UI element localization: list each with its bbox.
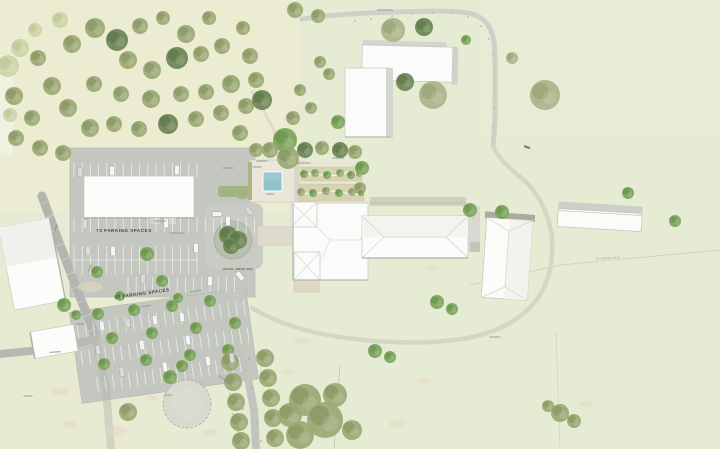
upper-parking-label: 73 PARKING SPACES	[96, 228, 152, 233]
grass-patch	[145, 395, 159, 401]
tree	[315, 141, 329, 155]
tree	[146, 327, 158, 339]
car	[83, 219, 88, 229]
tree	[202, 11, 216, 25]
tree	[142, 90, 160, 108]
leaf-dot	[248, 358, 250, 360]
tree	[119, 403, 137, 421]
tree	[204, 295, 216, 307]
tree	[106, 29, 128, 51]
tree	[163, 370, 177, 384]
east-wing-north-slope	[362, 216, 468, 237]
tree	[156, 275, 168, 287]
grass-patch	[62, 421, 78, 429]
tree	[249, 143, 263, 157]
tree	[262, 389, 280, 407]
road-dot	[493, 107, 495, 109]
car	[141, 274, 146, 284]
tree	[297, 188, 305, 196]
leaf-dot	[245, 370, 247, 372]
tiny-label-mark	[237, 197, 247, 198]
tree	[368, 344, 382, 358]
turnaround-circle	[163, 380, 211, 428]
tree	[140, 247, 154, 261]
tree	[323, 171, 331, 179]
tiny-label-mark	[170, 232, 185, 233]
tree	[294, 84, 306, 96]
existing-building	[84, 176, 194, 224]
tree	[140, 354, 152, 366]
car	[110, 166, 115, 176]
tree	[86, 76, 102, 92]
tree	[28, 23, 42, 37]
tree	[3, 108, 17, 122]
tree	[356, 171, 362, 177]
tree	[446, 303, 458, 315]
tree	[81, 119, 99, 137]
tiny-label-mark	[164, 394, 172, 395]
road-dot	[391, 15, 393, 17]
tiny-label-mark	[332, 157, 344, 158]
tree	[59, 99, 77, 117]
tree	[193, 46, 209, 62]
tree	[332, 142, 348, 158]
tree	[156, 11, 170, 25]
tree	[190, 322, 202, 334]
tree	[419, 81, 447, 109]
pool-shallow	[265, 174, 281, 181]
grass-patch	[50, 387, 70, 395]
barn-building	[479, 211, 535, 300]
grass-patch	[77, 282, 103, 292]
tree	[542, 400, 554, 412]
tree	[98, 358, 110, 370]
north-building-south-wing	[345, 68, 393, 138]
tree	[227, 393, 245, 411]
road-dot	[493, 71, 495, 73]
tree	[396, 73, 414, 91]
road-dot	[492, 54, 494, 56]
car	[175, 165, 180, 175]
tree	[198, 84, 214, 100]
leaf-dot	[256, 423, 258, 425]
tree	[236, 21, 250, 35]
tree	[63, 35, 81, 53]
tree	[415, 18, 433, 36]
site-plan-page: 73 PARKING SPACES 52 PARKING SPACES HOTE…	[0, 0, 720, 449]
tree	[323, 68, 335, 80]
tree	[43, 77, 61, 95]
tree	[256, 349, 274, 367]
car	[208, 276, 213, 286]
tree	[305, 102, 317, 114]
tree	[128, 304, 140, 316]
road-dot	[488, 38, 490, 40]
tree	[131, 121, 147, 137]
tree	[32, 140, 48, 156]
tree	[52, 12, 68, 28]
tiny-label-mark	[76, 323, 85, 324]
road-dot	[493, 89, 495, 91]
east-link-pad	[470, 242, 480, 252]
upper-meadow	[480, 0, 720, 130]
leaf-dot	[251, 387, 253, 389]
tree	[11, 39, 29, 57]
tree	[506, 52, 518, 64]
grass-patch	[294, 338, 310, 344]
road-dot	[432, 12, 434, 14]
grass-patch	[389, 420, 407, 428]
tree	[384, 351, 396, 363]
road-dot	[480, 25, 482, 27]
car	[194, 243, 199, 253]
tree	[132, 18, 148, 34]
tree	[311, 9, 325, 23]
grass-patch	[281, 369, 295, 375]
leaf-dot	[260, 440, 262, 442]
car	[86, 246, 91, 256]
tree	[297, 142, 313, 158]
tree	[463, 203, 477, 217]
tree	[8, 130, 24, 146]
tree	[430, 295, 444, 309]
car	[111, 246, 116, 256]
tree	[248, 72, 264, 88]
tree	[106, 332, 118, 344]
tree	[177, 25, 195, 43]
tree	[495, 205, 509, 219]
tree	[229, 317, 241, 329]
tree	[230, 413, 248, 431]
tree	[347, 171, 355, 179]
tree	[232, 125, 248, 141]
tree	[223, 238, 239, 254]
tree	[166, 300, 178, 312]
tree	[173, 86, 189, 102]
tree	[91, 266, 103, 278]
tree	[166, 47, 188, 69]
tree	[262, 142, 278, 158]
tree	[242, 48, 258, 64]
tree	[322, 187, 330, 195]
tiny-label-mark	[257, 160, 268, 161]
north-hedge-strip	[370, 197, 466, 206]
tiny-label-mark	[266, 193, 274, 194]
tree	[530, 80, 560, 110]
grass-patch	[579, 401, 593, 407]
tree	[342, 420, 362, 440]
road-dot	[467, 16, 469, 18]
site-plan-canvas: 73 PARKING SPACES 52 PARKING SPACES HOTE…	[0, 0, 720, 449]
tree	[24, 110, 40, 126]
road-dot	[492, 125, 494, 127]
road-dot	[370, 18, 372, 20]
tree	[277, 147, 299, 169]
tree	[311, 169, 319, 177]
drop-off-label: HOTEL DROP OFF	[223, 267, 254, 271]
tree	[278, 403, 302, 427]
tree	[461, 35, 471, 45]
tree	[158, 114, 178, 134]
existing-building-roof	[84, 176, 194, 218]
entry-walk	[258, 226, 298, 246]
tree	[214, 38, 230, 54]
tree	[30, 50, 46, 66]
north-bldg-shadow-e	[451, 47, 458, 84]
loading-dock-2	[168, 218, 176, 224]
tree	[335, 189, 343, 197]
turnaround-center	[172, 389, 202, 419]
car	[164, 218, 169, 228]
tiny-label-mark	[223, 167, 234, 168]
tiny-label-mark	[490, 336, 501, 337]
shed-building	[557, 201, 642, 231]
tree	[300, 170, 308, 178]
tree	[309, 189, 317, 197]
tree	[358, 190, 364, 196]
tree	[331, 115, 345, 129]
tiny-label-mark	[286, 116, 299, 117]
tree	[5, 87, 23, 105]
car	[226, 216, 231, 226]
tree	[85, 18, 105, 38]
grass-patch	[202, 429, 218, 437]
tree	[336, 169, 344, 177]
tree	[222, 75, 240, 93]
tree	[184, 349, 196, 361]
tiny-label-mark	[154, 220, 167, 221]
tree	[176, 360, 188, 372]
tree	[622, 187, 634, 199]
tiny-label-mark	[253, 166, 262, 167]
tree	[57, 298, 71, 312]
road-dot	[411, 13, 413, 15]
tree	[314, 56, 326, 68]
tree	[323, 383, 347, 407]
tree	[213, 105, 229, 121]
north-bldg-shadow-band	[386, 68, 393, 138]
tree	[224, 373, 242, 391]
road-dot	[451, 12, 453, 14]
tree	[252, 90, 272, 110]
grass-patch	[104, 426, 128, 436]
tree	[381, 18, 405, 42]
tree	[287, 2, 303, 18]
tree	[113, 86, 129, 102]
north-bldg-south-wing-roof	[345, 68, 389, 137]
tree	[567, 414, 581, 428]
tree	[238, 98, 254, 114]
tree	[106, 116, 122, 132]
road-dot	[354, 20, 356, 22]
car	[78, 167, 83, 177]
tree	[143, 61, 161, 79]
tree	[188, 111, 204, 127]
grass-patch	[425, 265, 439, 271]
tree	[669, 215, 681, 227]
tiny-label-mark	[377, 9, 393, 10]
tree	[348, 145, 362, 159]
tiny-label-mark	[296, 162, 311, 163]
tree	[266, 429, 284, 447]
tree	[55, 145, 71, 161]
tree	[259, 369, 277, 387]
tree	[92, 308, 104, 320]
tree	[71, 310, 81, 320]
grass-patch	[417, 378, 431, 384]
tree	[348, 188, 356, 196]
car	[212, 212, 222, 217]
tree	[119, 51, 137, 69]
tree	[286, 111, 300, 125]
pool-hedge	[248, 162, 252, 200]
tiny-label-mark	[24, 395, 33, 396]
